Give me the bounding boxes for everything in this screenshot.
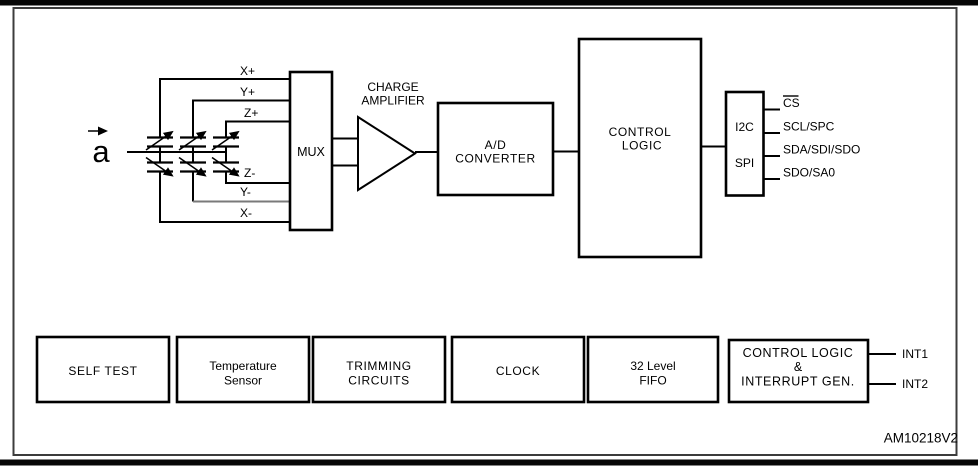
charge-amplifier-label-line2: AMPLIFIER [361,94,425,108]
self-test-block: SELF TEST [37,337,169,402]
trimming-circuits-label-line2: CIRCUITS [348,374,409,388]
electrode-label-x-minus: X- [240,206,252,220]
temperature-sensor-label-line1: Temperature [209,359,277,373]
electrode-label-z-minus: Z- [244,166,255,180]
charge-amplifier-block: CHARGE AMPLIFIER [358,80,425,190]
top-rule-bar [0,0,978,6]
trimming-circuits-label-line1: TRIMMING [346,359,411,373]
interrupt-generator-label-line1: CONTROL LOGIC [743,346,854,360]
interface-label-spi: SPI [735,156,754,170]
temperature-sensor-block: Temperature Sensor [177,337,309,402]
temperature-sensor-label-line2: Sensor [224,374,262,388]
control-logic-label-line1: CONTROL [609,125,672,139]
pin-label-sdo-sa0: SDO/SA0 [783,166,835,180]
adc-label-line2: CONVERTER [455,152,536,166]
pin-label-cs: CS [783,96,800,110]
serial-interface-block: I2C SPI [726,92,764,196]
electrode-label-x-plus: X+ [240,64,255,78]
fifo-label-line2: FIFO [639,374,666,388]
adc-block: A/D CONVERTER [438,103,553,195]
mux-label: MUX [297,145,325,159]
block-diagram: a X+ Y+ Z+ Z- Y- X- [0,0,978,472]
interrupt-generator-block: CONTROL LOGIC & INTERRUPT GEN. [729,340,868,402]
bottom-row: SELF TEST Temperature Sensor TRIMMING CI… [37,337,928,402]
adc-label-line1: A/D [485,138,507,152]
pin-label-sda-sdi-sdo: SDA/SDI/SDO [783,143,860,157]
figure-id-label: AM10218V2 [884,431,958,446]
interface-label-i2c: I2C [735,120,754,134]
pin-label-int2: INT2 [902,377,928,391]
bottom-rule-bar [0,460,978,466]
electrode-label-y-minus: Y- [240,185,251,199]
electrode-label-y-plus: Y+ [240,85,255,99]
fifo-label-line1: 32 Level [630,359,675,373]
interrupt-pins: INT1 INT2 [869,347,929,391]
interrupt-generator-label-line2: & [794,360,803,374]
fifo-block: 32 Level FIFO [588,337,718,402]
mux-block: MUX [290,72,332,230]
electrode-label-z-plus: Z+ [244,106,258,120]
control-logic-block: CONTROL LOGIC [579,39,701,257]
amplifier-triangle-icon [358,117,415,190]
trimming-circuits-block: TRIMMING CIRCUITS [313,337,445,402]
acceleration-symbol: a [92,134,110,169]
pin-label-scl-spc: SCL/SPC [783,120,835,134]
control-logic-label-line2: LOGIC [622,139,662,153]
clock-block: CLOCK [452,337,584,402]
charge-amplifier-label-line1: CHARGE [367,80,418,94]
interface-box [726,92,764,196]
clock-label: CLOCK [496,364,540,378]
self-test-label: SELF TEST [68,364,137,378]
sense-element: X+ Y+ Z+ Z- Y- X- [146,64,290,222]
interrupt-generator-label-line3: INTERRUPT GEN. [741,375,855,389]
interface-pins: CS SCL/SPC SDA/SDI/SDO SDO/SA0 [764,96,861,180]
pin-label-int1: INT1 [902,347,928,361]
datasheet-figure-page: a X+ Y+ Z+ Z- Y- X- [0,0,978,472]
